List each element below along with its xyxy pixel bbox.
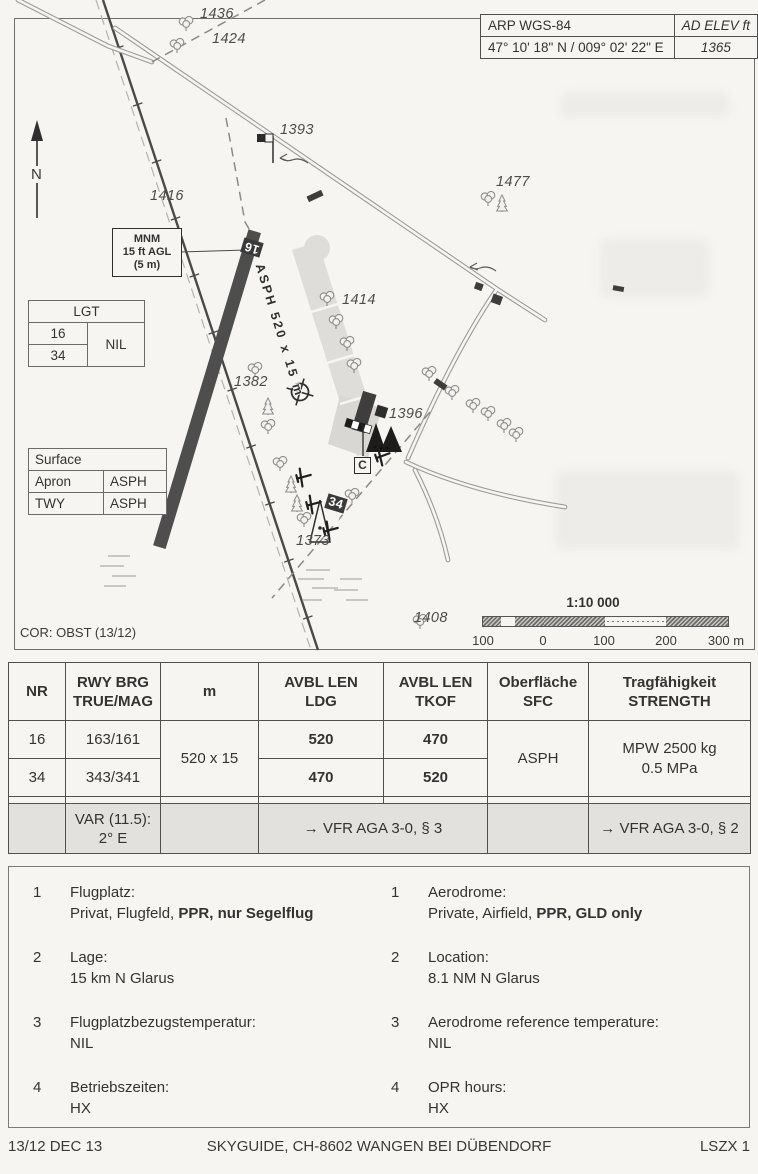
remark-title: Lage: xyxy=(70,947,174,968)
remark-line: HX xyxy=(428,1100,449,1117)
cell-tkof-16: 470 xyxy=(384,721,488,759)
footer-publisher: SKYGUIDE, CH-8602 WANGEN BEI DÜBENDORF xyxy=(194,1138,565,1155)
scale-tick: 100 xyxy=(461,633,505,648)
remark-title: Aerodrome reference temperature: xyxy=(428,1012,659,1033)
footer-date: 13/12 DEC 13 xyxy=(8,1138,194,1155)
visitor-sign-c: C xyxy=(354,457,371,474)
remark-line: NIL xyxy=(428,1035,451,1052)
remark-line: 15 km N Glarus xyxy=(70,970,174,987)
mnm-line1: MNM xyxy=(134,233,160,245)
lgt-value: NIL xyxy=(88,323,145,367)
scale-bar xyxy=(482,616,729,627)
col-strength-line1: Tragfähigkeit xyxy=(589,673,750,692)
arp-label: ARP WGS-84 xyxy=(481,15,675,37)
rwy-16-row: 16 163/161 520 x 15 520 470 ASPH MPW 250… xyxy=(9,721,751,759)
cell-brg-16: 163/161 xyxy=(66,721,161,759)
scale-segment xyxy=(483,617,544,626)
runway-data-table: NR RWY BRG TRUE/MAG m AVBL LEN LDG AVBL … xyxy=(8,662,751,854)
grass-strip xyxy=(292,235,383,458)
scale-segment xyxy=(666,617,728,626)
lgt-table: LGT 16 NIL 34 xyxy=(28,300,145,367)
col-tkof: AVBL LEN TKOF xyxy=(384,663,488,721)
scale-segment xyxy=(544,617,605,626)
windsock-icon xyxy=(257,134,273,163)
mnm-leader-line xyxy=(180,250,246,252)
var-empty xyxy=(9,804,66,854)
spot-elevation: 1373 xyxy=(296,533,330,549)
remark-line-bold: PPR, nur Segelflug xyxy=(178,905,313,922)
cell-ldg-34: 470 xyxy=(259,759,384,797)
remark-item: 3 Aerodrome reference temperature: NIL xyxy=(391,1012,741,1054)
footer-page-id: LSZX 1 xyxy=(565,1138,751,1155)
col-nr: NR xyxy=(9,663,66,721)
remark-number: 2 xyxy=(33,947,70,989)
arp-coordinates: 47° 10' 18" N / 009° 02' 22" E xyxy=(481,37,675,59)
spot-elevation: 1436 xyxy=(200,6,234,22)
remark-text: Location: 8.1 NM N Glarus xyxy=(428,947,540,989)
spacer-row xyxy=(9,797,751,804)
spot-elevation: 1408 xyxy=(414,610,448,626)
remark-text: Betriebszeiten: HX xyxy=(70,1077,169,1119)
remark-number: 2 xyxy=(391,947,428,989)
header-row: NR RWY BRG TRUE/MAG m AVBL LEN LDG AVBL … xyxy=(9,663,751,721)
col-tkof-line1: AVBL LEN xyxy=(384,673,487,692)
cell-strength-line1: MPW 2500 kg xyxy=(589,739,750,759)
surface-table: Surface Apron ASPH TWY ASPH xyxy=(28,448,167,515)
remark-title: Flugplatzbezugstemperatur: xyxy=(70,1012,256,1033)
aerodrome-chart-page: N 1436 1424 1393 1477 1416 1414 1382 139… xyxy=(0,0,758,1174)
spot-elevation: 1382 xyxy=(234,374,268,390)
remark-title: OPR hours: xyxy=(428,1077,506,1098)
col-ldg: AVBL LEN LDG xyxy=(259,663,384,721)
lgt-rwy-34: 34 xyxy=(29,345,88,367)
var-empty xyxy=(488,804,589,854)
remark-number: 3 xyxy=(391,1012,428,1054)
remark-number: 1 xyxy=(391,882,428,924)
cell-sfc: ASPH xyxy=(488,721,589,797)
remark-line: NIL xyxy=(70,1035,93,1052)
col-tkof-line2: TKOF xyxy=(384,692,487,711)
ref-avbl-len: → VFR AGA 3-0, § 3 xyxy=(259,804,488,854)
remark-number: 3 xyxy=(33,1012,70,1054)
remark-item: 1 Flugplatz: Privat, Flugfeld, PPR, nur … xyxy=(33,882,368,924)
north-label: N xyxy=(29,166,44,183)
remark-number: 4 xyxy=(391,1077,428,1119)
boundary-dashed-lines xyxy=(150,0,430,598)
elev-value: 1365 xyxy=(674,37,757,59)
surface-apron-value: ASPH xyxy=(104,471,167,493)
scale-tick: 200 xyxy=(644,633,688,648)
remark-text: Flugplatz: Privat, Flugfeld, PPR, nur Se… xyxy=(70,882,313,924)
threshold-marks xyxy=(329,513,346,526)
arp-info-table: ARP WGS-84 AD ELEV ft 47° 10' 18" N / 00… xyxy=(480,14,758,59)
page-footer: 13/12 DEC 13 SKYGUIDE, CH-8602 WANGEN BE… xyxy=(8,1138,750,1155)
col-m: m xyxy=(161,663,259,721)
remark-line: HX xyxy=(70,1100,91,1117)
spot-elevation: 1477 xyxy=(496,174,530,190)
marsh-symbols xyxy=(100,556,368,600)
col-sfc-line1: Oberfläche xyxy=(488,673,588,692)
scale-title: 1:10 000 xyxy=(468,595,718,610)
remark-line-bold: PPR, GLD only xyxy=(536,905,642,922)
remark-number: 1 xyxy=(33,882,70,924)
col-brg-line1: RWY BRG xyxy=(66,673,160,692)
remark-text: OPR hours: HX xyxy=(428,1077,506,1119)
scale-tick: 100 xyxy=(582,633,626,648)
cell-strength-line2: 0.5 MPa xyxy=(589,759,750,779)
remark-line: Privat, Flugfeld, xyxy=(70,905,178,922)
remarks-box: 1 Flugplatz: Privat, Flugfeld, PPR, nur … xyxy=(8,866,750,1128)
var-line2: 2° E xyxy=(66,829,160,848)
spot-elevation: 1396 xyxy=(389,406,423,422)
var-cell: VAR (11.5): 2° E xyxy=(66,804,161,854)
cell-nr-34: 34 xyxy=(9,759,66,797)
spot-elevation: 1416 xyxy=(150,188,184,204)
remark-text: Lage: 15 km N Glarus xyxy=(70,947,174,989)
ref-strength: → VFR AGA 3-0, § 2 xyxy=(589,804,751,854)
remark-number: 4 xyxy=(33,1077,70,1119)
mnm-line3: (5 m) xyxy=(134,259,160,271)
scale-tick: 300 m xyxy=(698,633,754,648)
remark-line: 8.1 NM N Glarus xyxy=(428,970,540,987)
spot-elevation: 1424 xyxy=(212,31,246,47)
remark-item: 1 Aerodrome: Private, Airfield, PPR, GLD… xyxy=(391,882,741,924)
var-row: VAR (11.5): 2° E → VFR AGA 3-0, § 3 → VF… xyxy=(9,804,751,854)
remark-title: Location: xyxy=(428,947,540,968)
remark-item: 4 Betriebszeiten: HX xyxy=(33,1077,368,1119)
remark-item: 3 Flugplatzbezugstemperatur: NIL xyxy=(33,1012,368,1054)
var-empty xyxy=(161,804,259,854)
spot-elevation: 1414 xyxy=(342,292,376,308)
scale-tick: 0 xyxy=(521,633,565,648)
remark-item: 2 Location: 8.1 NM N Glarus xyxy=(391,947,741,989)
remark-item: 4 OPR hours: HX xyxy=(391,1077,741,1119)
col-sfc-line2: SFC xyxy=(488,692,588,711)
remark-text: Aerodrome reference temperature: NIL xyxy=(428,1012,659,1054)
cell-dimensions: 520 x 15 xyxy=(161,721,259,797)
elev-label: AD ELEV ft xyxy=(674,15,757,37)
col-strength: Tragfähigkeit STRENGTH xyxy=(589,663,751,721)
remark-line: Private, Airfield, xyxy=(428,905,536,922)
remarks-german-column: 1 Flugplatz: Privat, Flugfeld, PPR, nur … xyxy=(33,882,368,1119)
spot-elevation: 1393 xyxy=(280,122,314,138)
col-sfc: Oberfläche SFC xyxy=(488,663,589,721)
mnm-line2: 15 ft AGL xyxy=(123,246,172,258)
surface-twy-label: TWY xyxy=(29,493,104,515)
cell-brg-34: 343/341 xyxy=(66,759,161,797)
var-line1: VAR (11.5): xyxy=(66,810,160,829)
remark-title: Betriebszeiten: xyxy=(70,1077,169,1098)
cor-note: COR: OBST (13/12) xyxy=(20,625,136,640)
col-brg: RWY BRG TRUE/MAG xyxy=(66,663,161,721)
remarks-english-column: 1 Aerodrome: Private, Airfield, PPR, GLD… xyxy=(391,882,741,1119)
lgt-rwy-16: 16 xyxy=(29,323,88,345)
cell-strength: MPW 2500 kg 0.5 MPa xyxy=(589,721,751,797)
surface-apron-label: Apron xyxy=(29,471,104,493)
surface-header: Surface xyxy=(29,449,167,471)
remark-title: Flugplatz: xyxy=(70,882,313,903)
cell-ldg-16: 520 xyxy=(259,721,384,759)
cell-tkof-34: 520 xyxy=(384,759,488,797)
col-brg-line2: TRUE/MAG xyxy=(66,692,160,711)
col-strength-line2: STRENGTH xyxy=(589,692,750,711)
lgt-header: LGT xyxy=(29,301,145,323)
remark-text: Flugplatzbezugstemperatur: NIL xyxy=(70,1012,256,1054)
mnm-height-box: MNM 15 ft AGL (5 m) xyxy=(112,228,182,277)
scale-segment xyxy=(605,617,666,626)
col-ldg-line1: AVBL LEN xyxy=(259,673,383,692)
col-ldg-line2: LDG xyxy=(259,692,383,711)
remark-text: Aerodrome: Private, Airfield, PPR, GLD o… xyxy=(428,882,642,924)
remark-title: Aerodrome: xyxy=(428,882,642,903)
aircraft-icons xyxy=(295,445,393,540)
cell-nr-16: 16 xyxy=(9,721,66,759)
surface-twy-value: ASPH xyxy=(104,493,167,515)
remark-item: 2 Lage: 15 km N Glarus xyxy=(33,947,368,989)
